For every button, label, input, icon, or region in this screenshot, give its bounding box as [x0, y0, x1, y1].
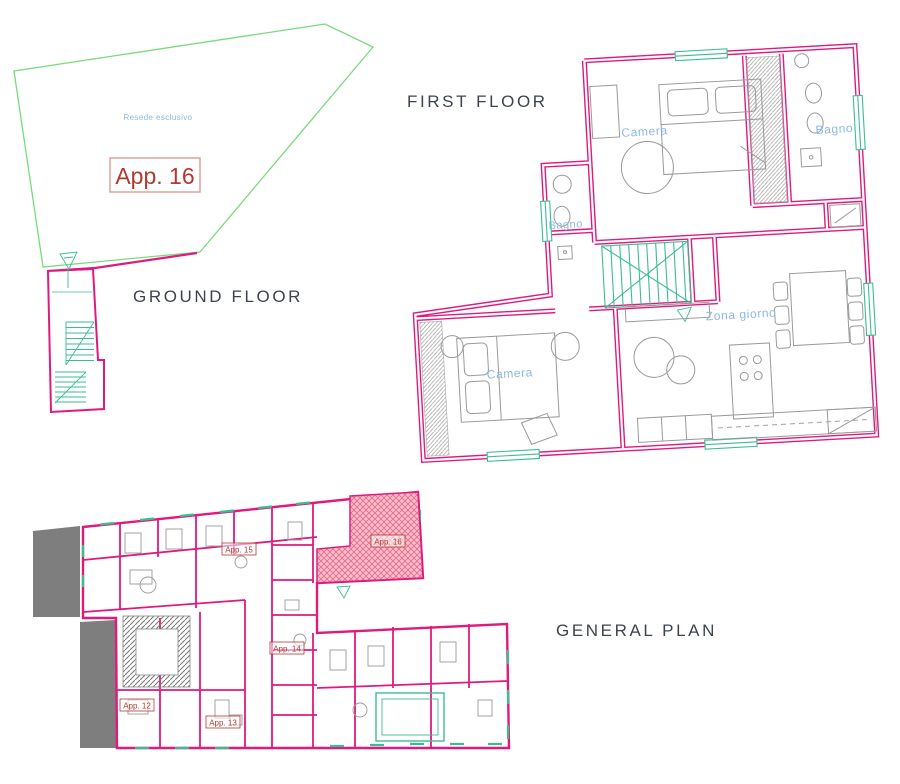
ground-floor-plan: Resede esclusivo App. 16 — [14, 24, 373, 412]
boundary-wall — [48, 253, 197, 271]
room-label-bagno-left: Bagno — [548, 218, 583, 232]
apartment-label-16-highlight: App. 16 — [371, 535, 405, 547]
first-floor-plan: Camera Bagno Bagno Camera Zona giorno — [401, 41, 881, 464]
apartment-label-15: App. 15 — [222, 543, 256, 555]
apartment-16-label: App. 16 — [115, 163, 194, 189]
apartment-label-12: App. 12 — [120, 699, 154, 711]
general-entrance-arrow-icon — [337, 586, 350, 598]
general-plan: App. 15 App. 14 App. 12 App. 13 App. 16 — [33, 492, 509, 748]
apartment-label-14: App. 14 — [270, 642, 304, 654]
floor-plans-drawing: Resede esclusivo App. 16 — [0, 0, 900, 784]
courtyard — [123, 616, 190, 687]
apartment-16-label-box: App. 16 — [110, 158, 200, 192]
stairwell — [48, 252, 104, 412]
svg-text:App. 16: App. 16 — [374, 538, 402, 547]
svg-text:App. 12: App. 12 — [123, 702, 151, 711]
garden-label: Resede esclusivo — [123, 113, 192, 122]
apartment-label-13: App. 13 — [206, 716, 240, 728]
room-label-camera-upper: Camera — [621, 123, 668, 140]
svg-text:App. 15: App. 15 — [225, 546, 253, 555]
svg-text:App. 13: App. 13 — [209, 719, 237, 728]
room-label-camera-lower: Camera — [486, 365, 533, 382]
room-label-bagno-right: Bagno — [815, 121, 853, 137]
floor-plan-page: FIRST FLOOR GROUND FLOOR GENERAL PLAN Re… — [0, 0, 900, 784]
adjacent-building-upper — [33, 526, 80, 617]
garden-boundary — [14, 24, 373, 267]
adjacent-building-lower — [80, 620, 116, 748]
svg-text:App. 14: App. 14 — [273, 645, 301, 654]
